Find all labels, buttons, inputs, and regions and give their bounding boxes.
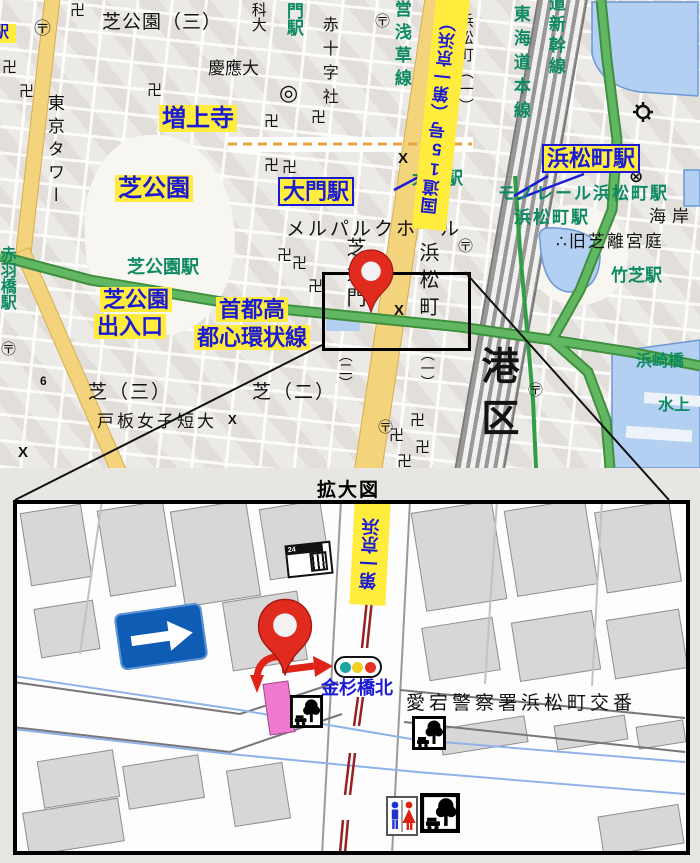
shuto-expwy-label-line1: 首都高	[216, 297, 288, 322]
shiba-2-label: 芝（二）	[252, 383, 336, 403]
kyu-shiba-rikyu-label: ∴旧芝離宮庭	[556, 233, 664, 251]
shuto-expwy-label-line2: 都心環状線	[194, 325, 310, 350]
park-icon	[290, 695, 323, 728]
toita-college-label: 戸板女子短大	[97, 413, 217, 431]
kadai-label: 科大	[250, 2, 266, 32]
temple-icon: 卍	[397, 454, 412, 468]
edge-partial-station-label: 駅	[0, 24, 16, 43]
school-icon: X	[228, 413, 237, 426]
enlarged-map: 第一京浜 24 金杉橋北 愛宕警察署浜松町交番	[13, 500, 690, 855]
factory-icon	[633, 102, 653, 122]
temple-icon: 卍	[282, 160, 297, 175]
temple-icon: 卍	[292, 256, 307, 271]
traffic-light-yellow	[352, 662, 363, 673]
daiichi-keihin-label-text: 第一京浜	[359, 518, 382, 591]
map-pin	[348, 246, 394, 316]
park-icon	[420, 793, 460, 833]
toilet-icon	[386, 796, 418, 836]
shibadaimon-2-chome-label: （二）	[338, 348, 353, 390]
hamamatsucho-station-highlight: 浜松町駅	[542, 144, 640, 173]
daimon-station-highlight: 大門駅	[278, 177, 354, 206]
shiba-koen-3-label: 芝公園（三）	[102, 13, 222, 33]
post-office-icon: 〶	[378, 420, 393, 435]
takeshiba-station-label: 竹芝駅	[611, 267, 662, 285]
suijo-label: 水上	[658, 398, 690, 415]
temple-icon: 卍	[415, 440, 430, 455]
temple-icon: 卍	[264, 158, 279, 173]
temple-icon: 卍	[147, 83, 162, 98]
temple-icon: 卍	[410, 413, 425, 428]
one-way-sign-icon	[113, 602, 208, 671]
akabanebashi-station-label: 赤羽橋駅	[0, 246, 14, 310]
kaigan-label: 海岸	[649, 208, 695, 226]
shiba-exit-label-line1: 芝公園	[100, 287, 172, 312]
monorail-hamamatsucho-label: モノレール浜松町駅	[498, 185, 669, 203]
store-door	[309, 551, 328, 572]
temple-icon: 卍	[264, 114, 279, 129]
shiba-3-label: 芝（三）	[88, 383, 172, 403]
temple-icon: 卍	[311, 110, 326, 125]
shinkansen-label: 道新幹線	[546, 0, 564, 78]
park-icon	[412, 716, 446, 750]
temple-icon: 卍	[308, 279, 323, 294]
post-office-icon: 〶	[458, 239, 473, 254]
post-office-icon: 〶	[1, 342, 16, 357]
red-cross-label: 赤十字社	[319, 16, 336, 112]
gate-station-label: 門駅	[284, 2, 302, 36]
post-office-icon: 〶	[34, 20, 51, 37]
post-office-icon: 〶	[375, 14, 390, 29]
route6-shield: 6	[40, 375, 47, 387]
temple-icon: 卍	[2, 60, 17, 75]
koban-icon: X	[398, 151, 408, 166]
keio-univ-label: 慶應大	[208, 60, 259, 78]
enlarged-map-title: 拡大図	[317, 475, 380, 502]
tokyo-tower-label: 東京タワー	[45, 94, 63, 209]
zojoji-label: 増上寺	[159, 105, 237, 132]
traffic-light-green	[340, 662, 351, 673]
shiba-koen-label: 芝公園	[115, 175, 193, 202]
kanasugibashi-kita-label: 金杉橋北	[321, 679, 393, 698]
convenience-store-icon: 24	[284, 541, 333, 579]
hamamatsucho-1-chome-label: （一）	[420, 347, 435, 389]
asakusa-line-label: 営浅草線	[392, 0, 410, 92]
zoom-area-box	[322, 272, 471, 351]
traffic-light-red	[365, 662, 376, 673]
rail-lines	[340, 600, 372, 851]
koban-label: 愛宕警察署浜松町交番	[406, 694, 636, 714]
tokaido-main-line-label: 東海道本線	[511, 5, 529, 125]
temple-icon: 卍	[277, 248, 292, 263]
koban-icon: X	[18, 445, 28, 460]
minato-ku-label: 港区	[475, 346, 515, 450]
hamazakibashi-label: 浜崎橋	[636, 354, 684, 371]
temple-icon: 卍	[19, 84, 34, 99]
map-pin-enlarged	[257, 598, 313, 676]
university-icon: ◎	[279, 82, 298, 104]
traffic-light-icon	[334, 656, 382, 678]
shiba-exit-label-line2: 出入口	[94, 314, 166, 339]
temple-icon: 卍	[70, 3, 85, 18]
post-office-icon: 〶	[528, 383, 543, 398]
hamamatsucho-station-map-label: 浜松町駅	[514, 209, 590, 227]
overview-map: 卍 卍 卍 卍 卍 卍 卍 卍 卍 卍 卍 卍 卍 卍 卍 〶 〶 〶 〶 〶 …	[0, 0, 700, 468]
daiichi-keihin-label: 第一京浜	[349, 502, 390, 606]
shiba-koen-station-label: 芝公園駅	[127, 258, 199, 277]
